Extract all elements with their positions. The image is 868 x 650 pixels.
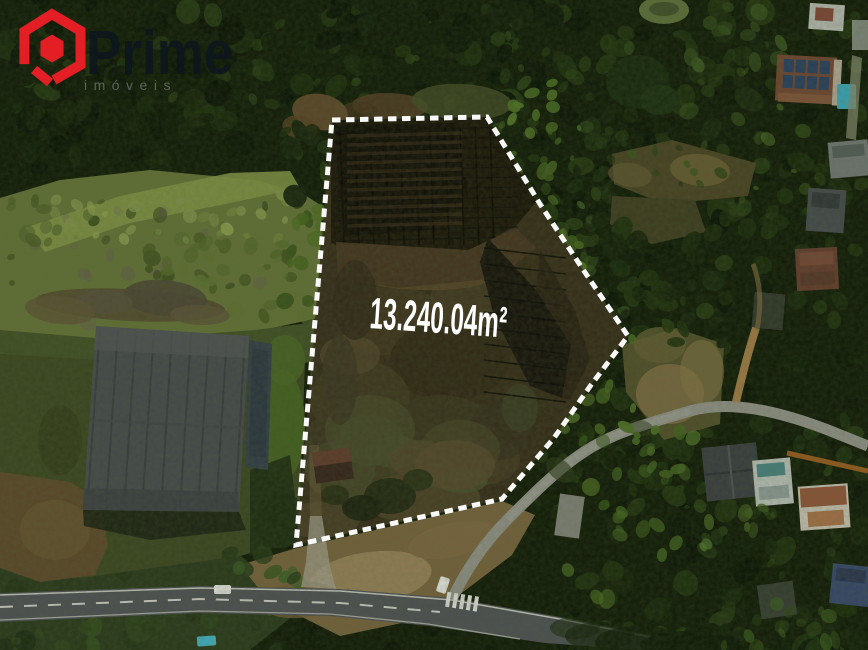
svg-text:imóveis: imóveis [84, 77, 177, 93]
svg-text:13.240.04m²: 13.240.04m² [368, 288, 508, 347]
